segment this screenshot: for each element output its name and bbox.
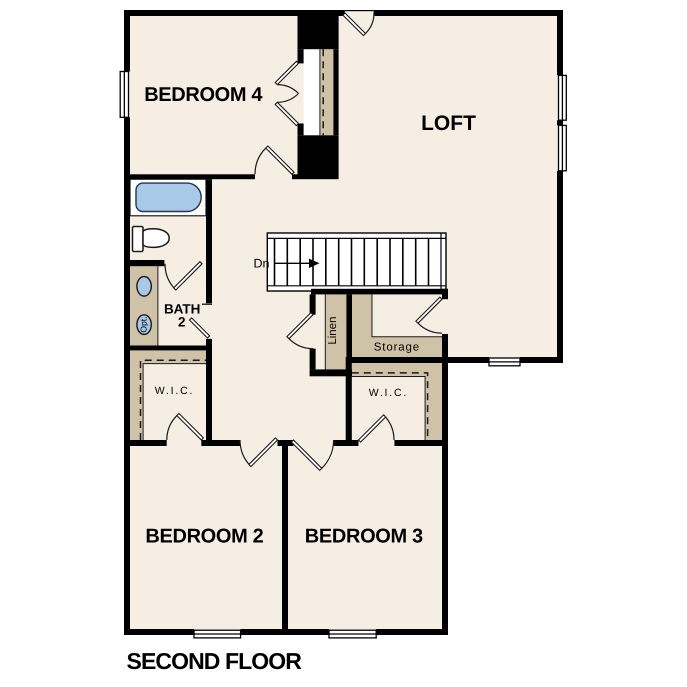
svg-text:SECOND FLOOR: SECOND FLOOR bbox=[127, 648, 303, 674]
svg-text:W.I.C.: W.I.C. bbox=[155, 385, 194, 397]
svg-text:Storage: Storage bbox=[374, 342, 420, 354]
svg-text:W.I.C.: W.I.C. bbox=[369, 387, 408, 399]
svg-text:Dn: Dn bbox=[254, 257, 270, 271]
svg-text:Opt.: Opt. bbox=[138, 317, 148, 333]
svg-text:BEDROOM 3: BEDROOM 3 bbox=[305, 526, 423, 548]
svg-text:2: 2 bbox=[178, 314, 186, 329]
svg-text:BEDROOM 4: BEDROOM 4 bbox=[144, 84, 263, 106]
svg-text:LOFT: LOFT bbox=[421, 112, 476, 135]
svg-text:Linen: Linen bbox=[327, 317, 339, 345]
svg-text:BEDROOM 2: BEDROOM 2 bbox=[145, 526, 263, 548]
